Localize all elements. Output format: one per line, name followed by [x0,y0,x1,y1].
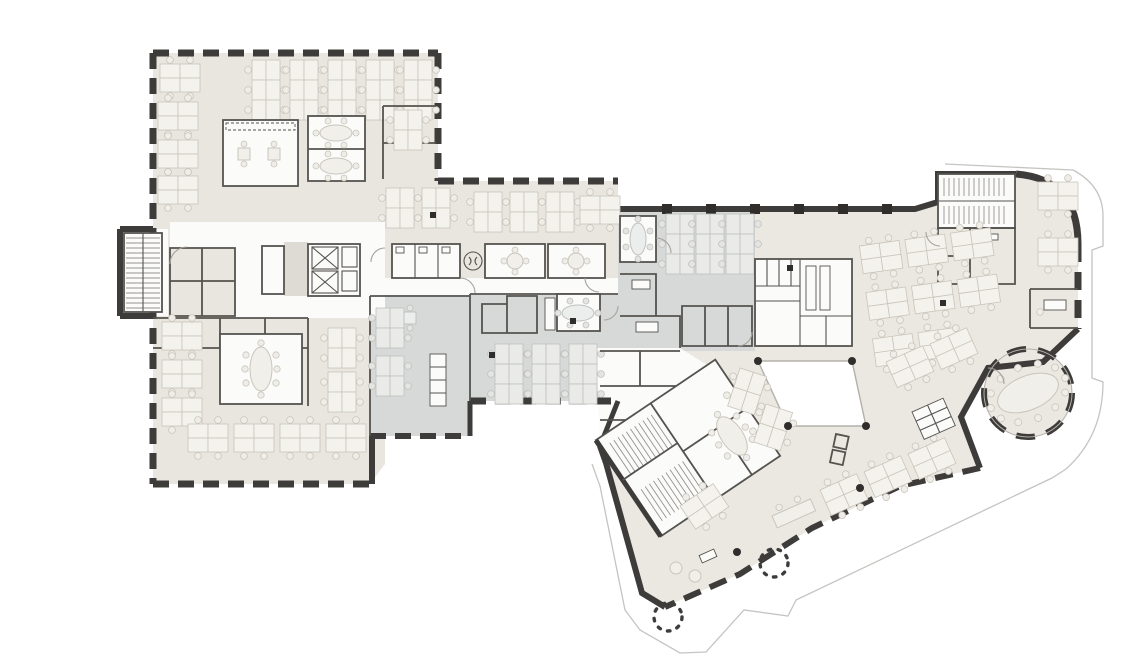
column-dot-icon [570,318,576,324]
kitchen-counter [226,123,295,130]
desk-cluster [562,344,605,404]
column-dot-icon [733,548,741,556]
lift-lobby [284,242,308,296]
column-dot-icon [787,265,793,271]
desk-cluster [245,60,288,120]
lounge-table [689,570,701,582]
column-dot-icon [862,422,870,430]
column-dot-icon [430,212,436,218]
desk-cluster [525,344,568,404]
mid-band-rooms [392,244,605,278]
wc-core-wing [755,259,852,346]
desk [1044,300,1066,310]
column-dot-icon [489,352,495,358]
kitchen-counter [545,298,555,330]
desk-cluster [321,60,364,120]
column-dot-icon [784,422,792,430]
column-dot-icon [940,300,946,306]
desk [632,280,650,289]
desk-cluster [283,60,326,120]
lounge-table [670,562,682,574]
column-dot-icon [754,357,762,365]
elevator-core [308,244,360,296]
corridor-mid [385,278,618,295]
floor-plan-figure [40,16,1139,656]
desk [636,322,658,332]
column-dot-icon [856,484,864,492]
column-dot-icon [848,357,856,365]
floor-plan-svg [40,16,1139,656]
southwest-block-interior [162,315,366,460]
core-room [262,246,284,294]
